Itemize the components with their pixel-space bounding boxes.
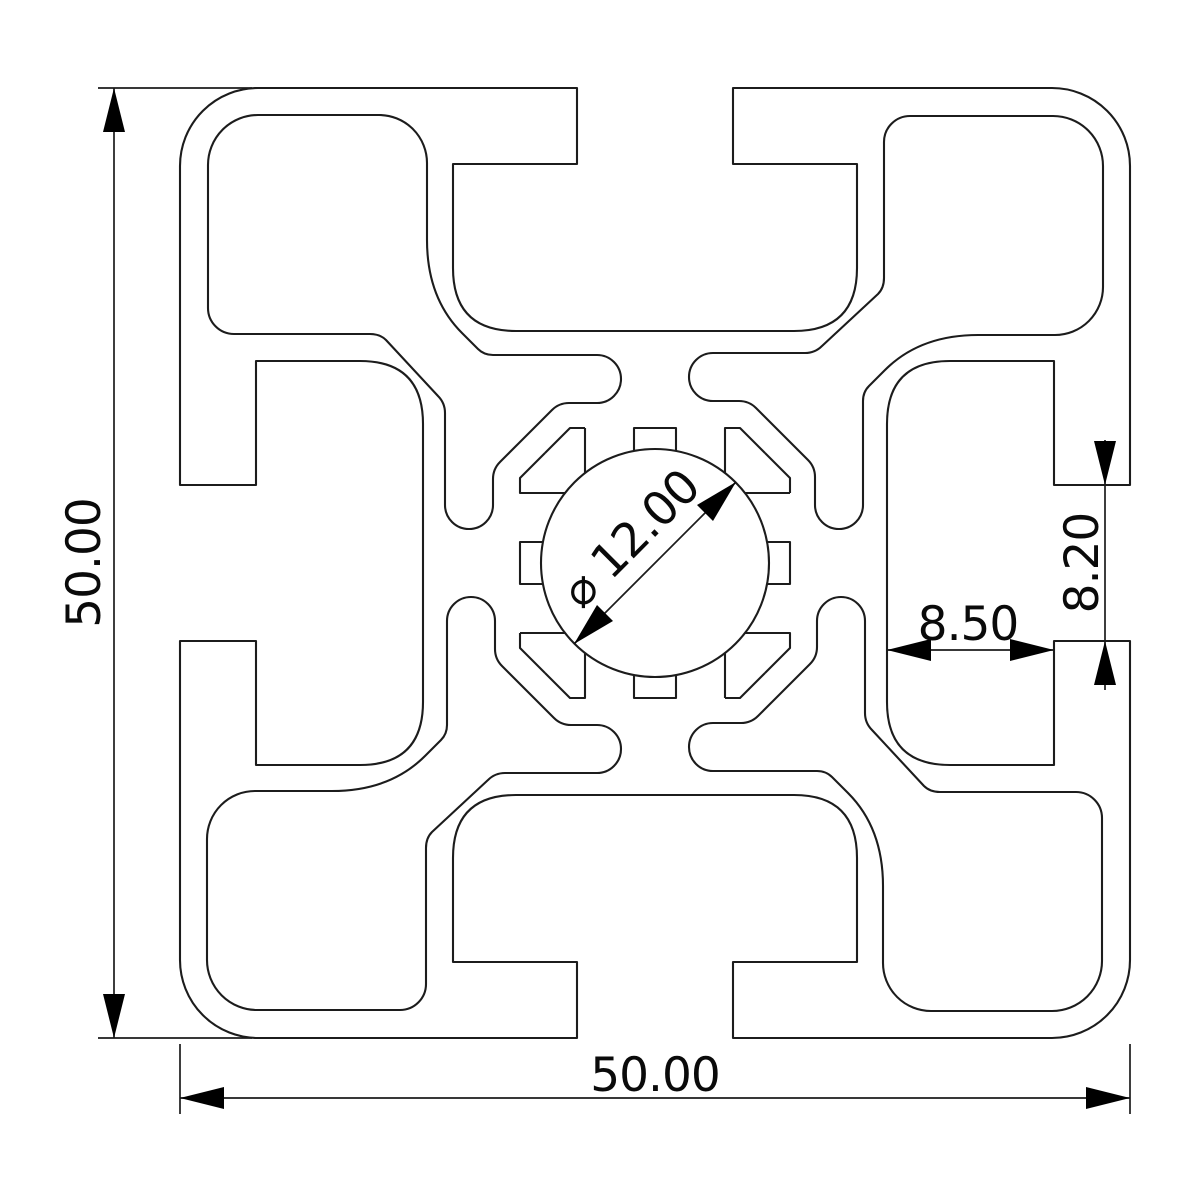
cavity-bottom-left	[207, 597, 621, 1010]
core-face-top	[545, 428, 765, 473]
dimension-text-slot-opening: 8.20	[1055, 513, 1110, 614]
dimension-center-bore: ⌀ 12.00	[551, 459, 736, 644]
profile-side-left	[180, 166, 423, 1038]
dimension-text-height: 50.00	[57, 498, 112, 628]
profile-side-bottom	[258, 795, 1130, 1038]
arrowhead-down-icon	[1094, 441, 1116, 485]
dimension-overall-height: 50.00	[57, 88, 252, 1038]
arrowhead-right-icon	[1086, 1087, 1130, 1109]
profile-drawing-svg: 50.00 50.00 8.20 8.50 ⌀ 12.00	[0, 0, 1200, 1200]
arrowhead-down-icon	[103, 994, 125, 1038]
cavity-bottom-right	[689, 597, 1102, 1011]
cavity-top-left	[208, 115, 621, 529]
arrowhead-up-icon	[103, 88, 125, 132]
arrowhead-left-icon	[180, 1087, 224, 1109]
dimension-slot-opening: 8.20	[1055, 440, 1116, 690]
profile-side-top	[180, 88, 1052, 331]
drawing-canvas: 50.00 50.00 8.20 8.50 ⌀ 12.00	[0, 0, 1200, 1200]
dimension-text-bore: ⌀ 12.00	[551, 459, 711, 619]
arrowhead-up-icon	[1094, 641, 1116, 685]
dimension-text-width: 50.00	[590, 1048, 720, 1103]
dimension-overall-width: 50.00	[180, 1044, 1130, 1114]
core-face-left	[520, 453, 565, 673]
dimension-slot-depth: 8.50	[887, 597, 1054, 661]
cavity-top-right	[689, 116, 1103, 529]
dimension-text-slot-depth: 8.50	[918, 597, 1019, 652]
core-face-right	[745, 453, 790, 673]
core-face-bottom	[545, 653, 765, 698]
